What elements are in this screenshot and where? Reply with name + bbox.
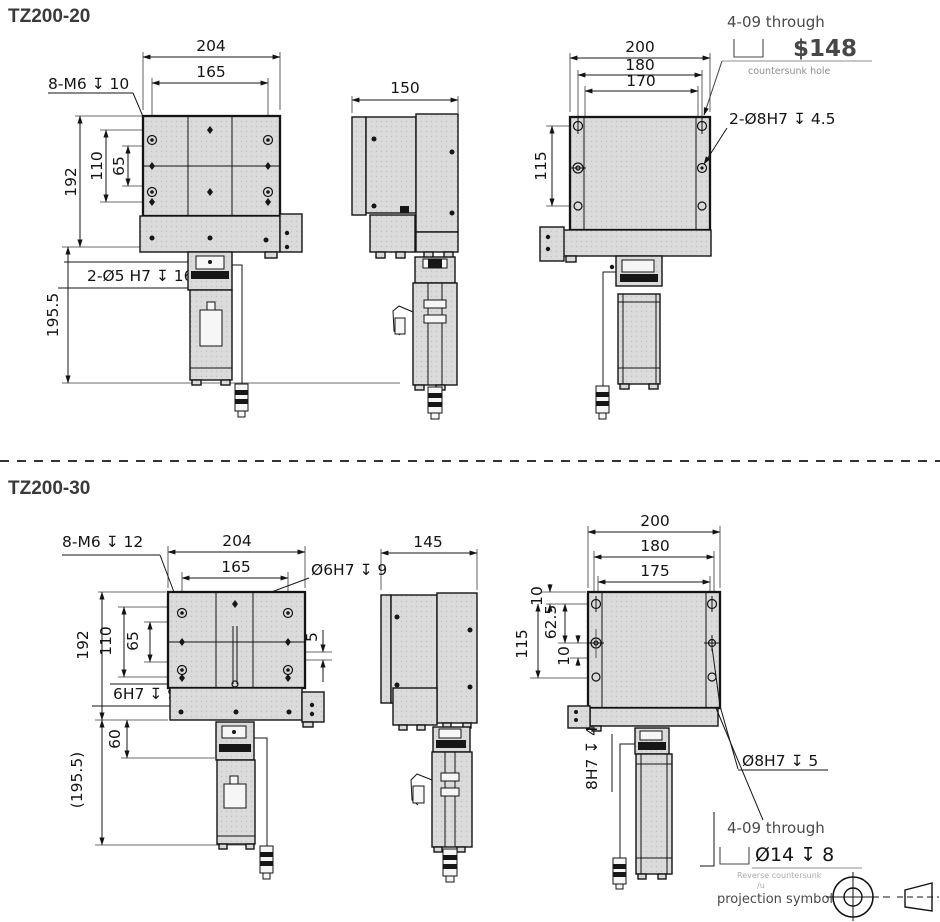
motor-assembly bbox=[393, 257, 457, 419]
dim-depth-150: 150 bbox=[390, 79, 420, 97]
motor-assembly bbox=[216, 722, 273, 879]
back-view-tz200-30: 200 180 175 10 62.5 115 10 bbox=[513, 512, 939, 921]
callout-d6h7: Ø6H7 ↧ 9 bbox=[311, 561, 387, 579]
pin-hole-callout: Ø8H7 ↧ 5 bbox=[712, 647, 828, 770]
dim-width-165: 165 bbox=[221, 558, 251, 576]
first-angle-projection-icon bbox=[826, 872, 939, 921]
dim-width-204: 204 bbox=[196, 37, 226, 55]
motor-assembly bbox=[411, 727, 472, 882]
counterbore-icon bbox=[720, 847, 749, 864]
dim-height-65: 65 bbox=[110, 156, 128, 176]
side-view-tz200-30: 145 bbox=[381, 533, 477, 882]
cable-connector bbox=[428, 387, 442, 419]
motor-cable bbox=[620, 744, 635, 858]
pin-holes-callout: 2-Ø8H7 ↧ 4.5 bbox=[704, 110, 836, 164]
countersunk-hole-label: countersunk hole bbox=[748, 66, 831, 77]
drawing-canvas: TZ200-20 204 165 192 110 65 195.5 8-M6 ↧… bbox=[0, 0, 940, 922]
countersunk-callout: 4-09 through $148 countersunk hole bbox=[704, 13, 872, 115]
model-title-tz200-20: TZ200-20 bbox=[8, 6, 90, 27]
motor-assembly bbox=[613, 728, 672, 889]
cable-connector bbox=[260, 846, 273, 879]
model-title-tz200-30: TZ200-30 bbox=[8, 478, 90, 499]
countersunk-callout: 4-09 through Ø14 ↧ 8 Reverse countersunk… bbox=[700, 708, 862, 890]
base-plate bbox=[170, 688, 324, 727]
motor-assembly bbox=[188, 252, 248, 417]
dim-width-170: 170 bbox=[626, 72, 656, 90]
motor-cable bbox=[232, 265, 242, 384]
dim-height-62-5: 62.5 bbox=[542, 605, 560, 640]
dim-width-200: 200 bbox=[625, 38, 655, 56]
dim-motor-height-195-5: 195.5 bbox=[44, 293, 62, 337]
dim-height-115: 115 bbox=[532, 151, 550, 181]
dim-width-175: 175 bbox=[640, 562, 670, 580]
dim-width-165: 165 bbox=[196, 63, 226, 81]
cable-connector bbox=[596, 386, 609, 419]
cable-connector bbox=[443, 849, 457, 882]
dim-height-110: 110 bbox=[97, 626, 115, 656]
front-view-tz200-20: 204 165 192 110 65 195.5 8-M6 ↧ 10 2-Ø5 … bbox=[44, 37, 400, 417]
counterbore-icon bbox=[734, 39, 763, 57]
callout-8-m6: 8-M6 ↧ 10 bbox=[48, 75, 129, 93]
m6-holes-callout: 8-M6 ↧ 12 bbox=[62, 533, 180, 608]
price-tag: $148 bbox=[793, 36, 857, 62]
dim-offset-10-mid: 10 bbox=[555, 646, 573, 666]
callout-4-09-through: 4-09 through bbox=[727, 13, 825, 31]
dim-height-115: 115 bbox=[513, 629, 531, 659]
motor-assembly bbox=[596, 256, 662, 419]
dim-height-60: 60 bbox=[106, 729, 124, 749]
dim-width-204: 204 bbox=[222, 532, 252, 550]
back-view-tz200-20: 200 180 170 115 bbox=[532, 13, 872, 419]
callout-2-d5: 2-Ø5 H7 ↧ 16 bbox=[87, 267, 194, 285]
dim-offset-10-top: 10 bbox=[528, 586, 546, 606]
dim-height-65: 65 bbox=[124, 631, 142, 651]
callout-2-d8h7: 2-Ø8H7 ↧ 4.5 bbox=[729, 110, 836, 128]
callout-4-09-through: 4-09 through bbox=[727, 819, 825, 837]
dim-height-192: 192 bbox=[62, 167, 80, 197]
dim-depth-145: 145 bbox=[413, 533, 443, 551]
shaft-hole-callout: 8H7 ↧ 4 bbox=[583, 726, 612, 792]
front-view-tz200-30: 204 165 192 110 65 5 60 (195.5) 8-M6 ↧ 1… bbox=[62, 532, 387, 879]
top-plate bbox=[570, 117, 710, 230]
dim-width-200: 200 bbox=[640, 512, 670, 530]
top-plate bbox=[588, 592, 720, 708]
technical-drawing-sheet: TZ200-20 204 165 192 110 65 195.5 8-M6 ↧… bbox=[0, 0, 940, 922]
top-plate bbox=[143, 116, 280, 216]
watermark-remnant: ∕u bbox=[757, 881, 765, 890]
side-view-tz200-20: 150 bbox=[352, 79, 458, 419]
cable-connector bbox=[613, 858, 626, 889]
motor-cable bbox=[254, 738, 267, 846]
dim-height-110: 110 bbox=[88, 151, 106, 181]
reverse-countersunk-label: Reverse countersunk bbox=[737, 871, 822, 880]
dim-height-192: 192 bbox=[74, 630, 92, 660]
dim-width-180: 180 bbox=[640, 537, 670, 555]
m6-holes-callout: 8-M6 ↧ 10 bbox=[48, 75, 150, 133]
projection-symbol-label: projection symbol bbox=[717, 892, 833, 907]
callout-8-m6: 8-M6 ↧ 12 bbox=[62, 533, 143, 551]
callout-d8h7: Ø8H7 ↧ 5 bbox=[742, 752, 818, 770]
dim-motor-height-195-5: (195.5) bbox=[68, 752, 86, 808]
callout-8h7: 8H7 ↧ 4 bbox=[583, 726, 601, 790]
callout-d14: Ø14 ↧ 8 bbox=[755, 844, 834, 866]
motor-cable bbox=[603, 272, 616, 386]
cable-connector bbox=[235, 384, 248, 417]
